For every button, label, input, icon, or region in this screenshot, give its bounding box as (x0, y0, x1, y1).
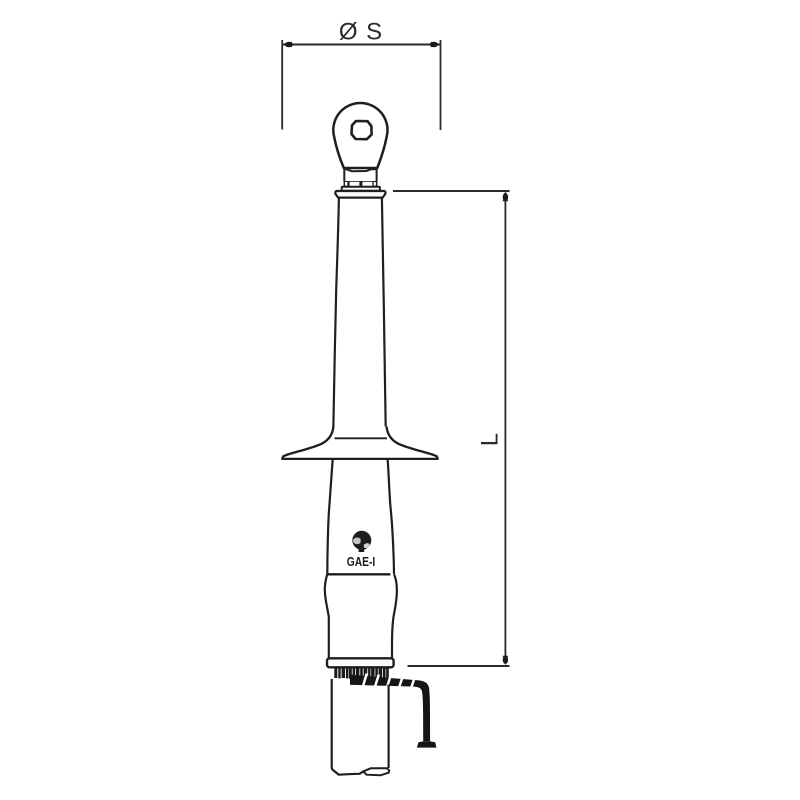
svg-text:Ø S: Ø S (339, 19, 383, 46)
svg-text:GAE-I: GAE-I (347, 556, 375, 569)
svg-text:L: L (476, 433, 503, 446)
